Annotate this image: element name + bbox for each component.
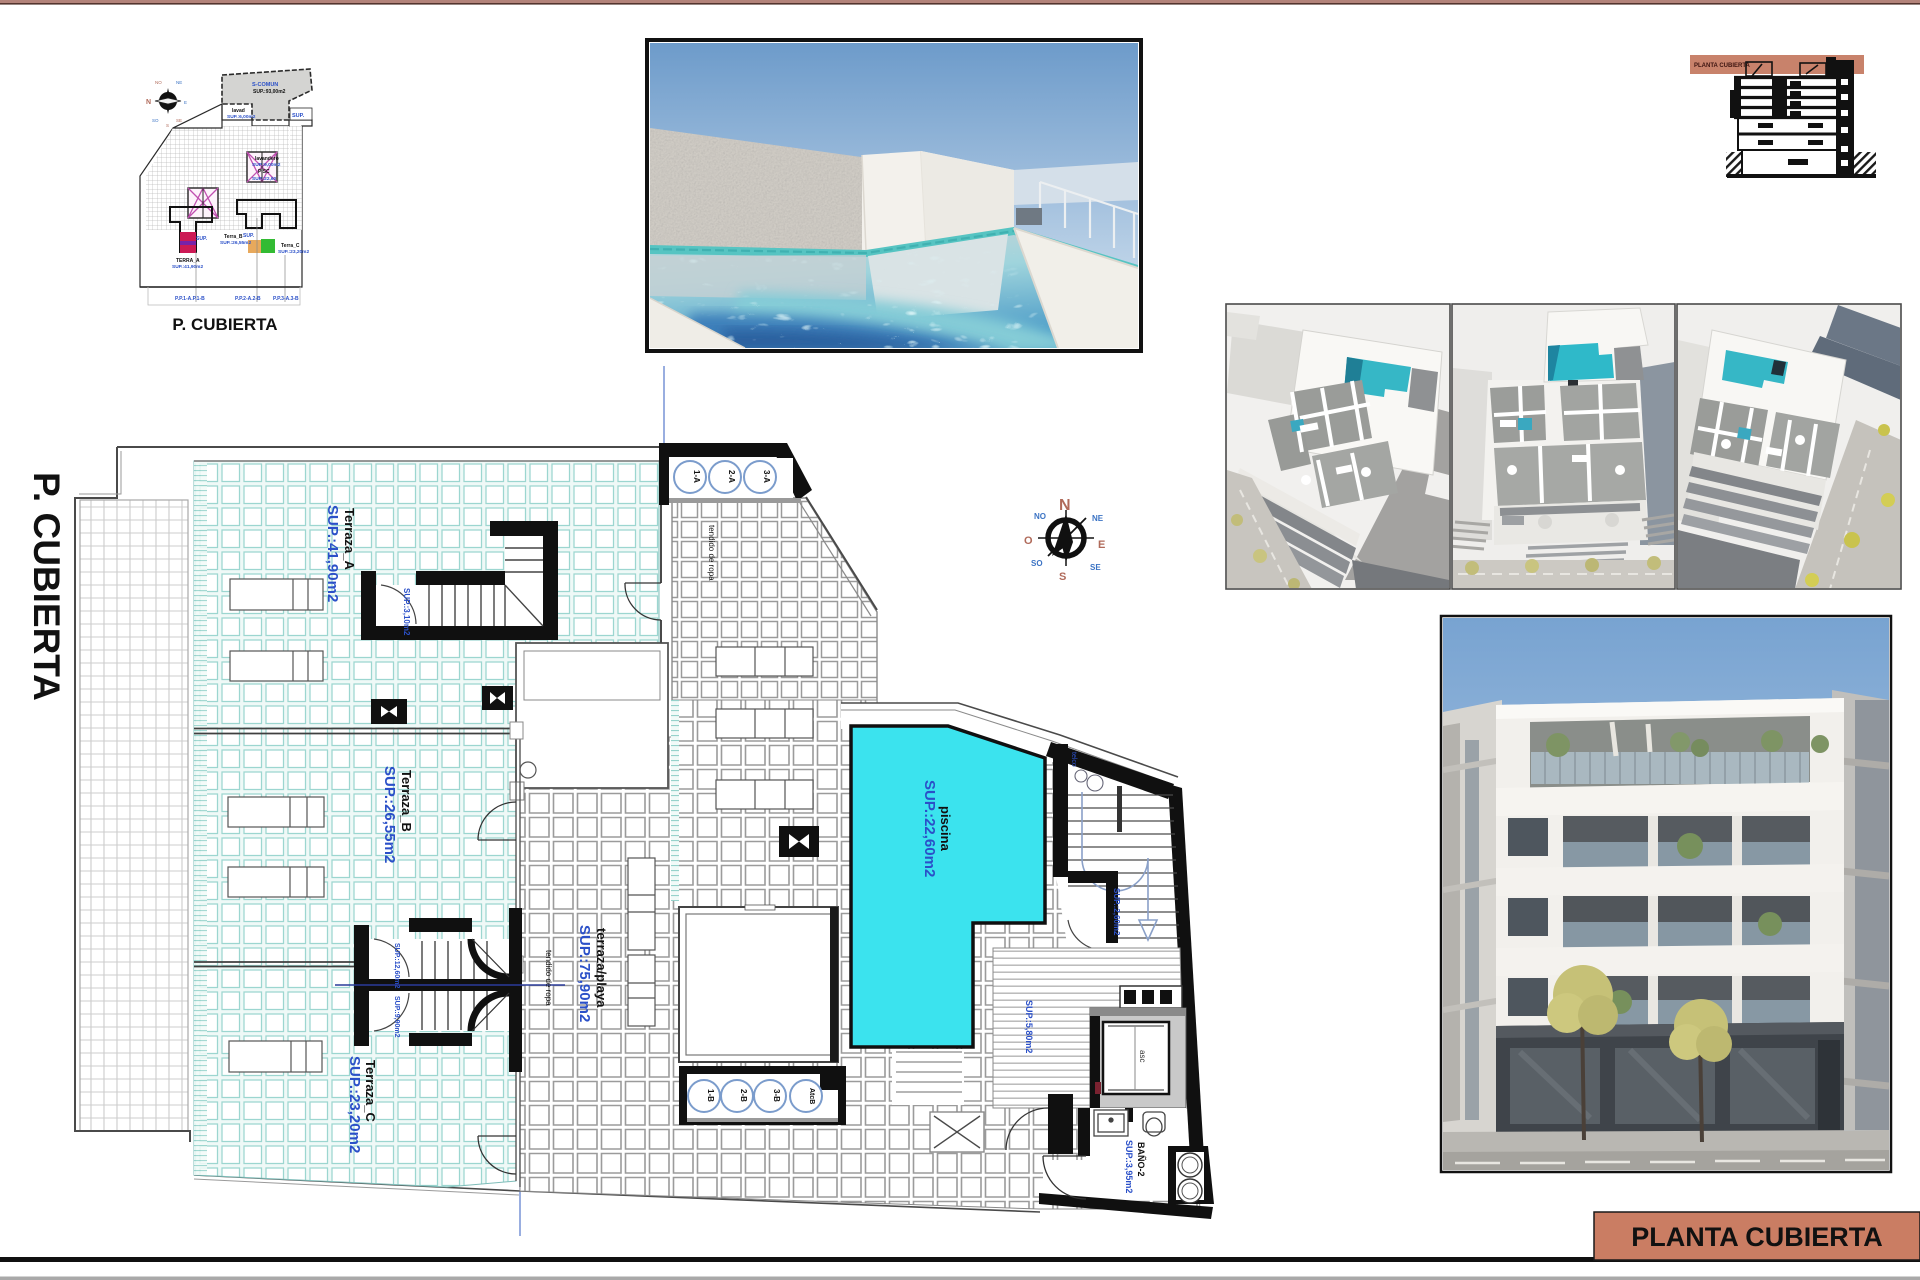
svg-text:1-B: 1-B (706, 1089, 715, 1102)
svg-text:P. CUBIERTA: P. CUBIERTA (172, 315, 277, 334)
svg-text:SUP.:41,90m2: SUP.:41,90m2 (324, 505, 341, 602)
svg-text:Terra_C: Terra_C (281, 243, 300, 249)
svg-text:SUP.:2,60m2: SUP.:2,60m2 (1112, 888, 1121, 936)
svg-text:N: N (146, 99, 151, 106)
svg-text:2-A: 2-A (727, 470, 736, 483)
svg-text:PLANTA CUBIERTA: PLANTA CUBIERTA (1694, 63, 1751, 69)
svg-text:3-B: 3-B (772, 1089, 781, 1102)
svg-text:AtcB: AtcB (808, 1088, 815, 1104)
svg-text:SUP.:9,00m2: SUP.:9,00m2 (252, 162, 281, 168)
svg-text:SUP.:3,10m2: SUP.:3,10m2 (402, 588, 411, 636)
svg-text:Terraza_B: Terraza_B (399, 770, 414, 832)
svg-text:terraza/playa: terraza/playa (594, 928, 609, 1008)
svg-text:SUP.:26,55m2: SUP.:26,55m2 (381, 766, 398, 863)
svg-text:Terraza_C: Terraza_C (363, 1060, 378, 1123)
svg-text:1-A: 1-A (692, 470, 701, 483)
svg-text:piscina: piscina (938, 806, 953, 852)
svg-text:O: O (1024, 535, 1033, 547)
svg-text:SUP.:22,60: SUP.:22,60 (252, 176, 277, 182)
svg-text:SUP.:5,80m2: SUP.:5,80m2 (1024, 1000, 1034, 1053)
svg-text:asc: asc (1138, 1050, 1147, 1062)
svg-text:NO: NO (155, 80, 162, 85)
svg-text:SE: SE (1090, 563, 1101, 572)
svg-text:Terraza_A: Terraza_A (342, 508, 357, 571)
svg-text:S-COMUN: S-COMUN (252, 82, 278, 88)
svg-text:SUP.:6,00m2: SUP.:6,00m2 (227, 114, 256, 120)
svg-text:lavandero: lavandero (255, 156, 279, 162)
svg-text:PISC: PISC (258, 169, 270, 175)
svg-text:3-A: 3-A (762, 470, 771, 483)
svg-text:SUP.: SUP. (196, 236, 208, 242)
svg-text:SUP.:93,00m2: SUP.:93,00m2 (253, 89, 286, 95)
svg-text:2-B: 2-B (739, 1089, 748, 1102)
svg-text:SUP.:23,20m2: SUP.:23,20m2 (278, 249, 309, 255)
svg-text:NE: NE (176, 80, 182, 85)
svg-text:P.P.1-A.P.1-B: P.P.1-A.P.1-B (175, 296, 205, 302)
svg-text:NO: NO (1034, 512, 1046, 521)
svg-text:SO: SO (152, 118, 159, 123)
svg-text:SUP.:26,55m2: SUP.:26,55m2 (220, 240, 251, 246)
svg-text:SUP.:23,20m2: SUP.:23,20m2 (346, 1056, 363, 1153)
svg-text:E: E (1098, 539, 1105, 551)
svg-text:SUP.:9,90m2: SUP.:9,90m2 (393, 996, 400, 1038)
svg-text:telco: telco (1070, 752, 1077, 767)
svg-text:P.P.2-A.2-B: P.P.2-A.2-B (235, 296, 261, 302)
svg-text:SUP.:3,95m2: SUP.:3,95m2 (1124, 1140, 1134, 1193)
svg-text:SE: SE (176, 118, 182, 123)
svg-text:N: N (1059, 497, 1071, 514)
svg-text:P.P.3-A.3-B: P.P.3-A.3-B (273, 296, 299, 302)
svg-text:PLANTA CUBIERTA: PLANTA CUBIERTA (1631, 1222, 1882, 1252)
svg-text:TERRA_A: TERRA_A (176, 258, 200, 264)
svg-text:E: E (184, 100, 187, 105)
svg-text:tendido de ropa: tendido de ropa (707, 525, 716, 581)
svg-text:SO: SO (1031, 559, 1043, 568)
svg-text:SUP.:22,60m2: SUP.:22,60m2 (921, 780, 938, 877)
svg-text:SUP.: SUP. (292, 113, 305, 119)
svg-text:SUP.:41,90m2: SUP.:41,90m2 (172, 264, 203, 270)
svg-text:S: S (166, 123, 169, 128)
svg-text:BAÑO-2: BAÑO-2 (1136, 1142, 1146, 1177)
svg-text:SUP.:12,60m2: SUP.:12,60m2 (393, 943, 400, 989)
svg-text:SUP.:75,90m2: SUP.:75,90m2 (576, 925, 593, 1022)
svg-text:SUP.: SUP. (243, 233, 255, 239)
svg-text:NE: NE (1092, 514, 1104, 523)
svg-text:lavad: lavad (232, 108, 245, 114)
svg-text:tendido de ropa: tendido de ropa (544, 950, 553, 1006)
svg-text:P. CUBIERTA: P. CUBIERTA (26, 472, 67, 701)
svg-text:S: S (1059, 571, 1066, 583)
svg-text:Terra_B: Terra_B (224, 234, 243, 240)
